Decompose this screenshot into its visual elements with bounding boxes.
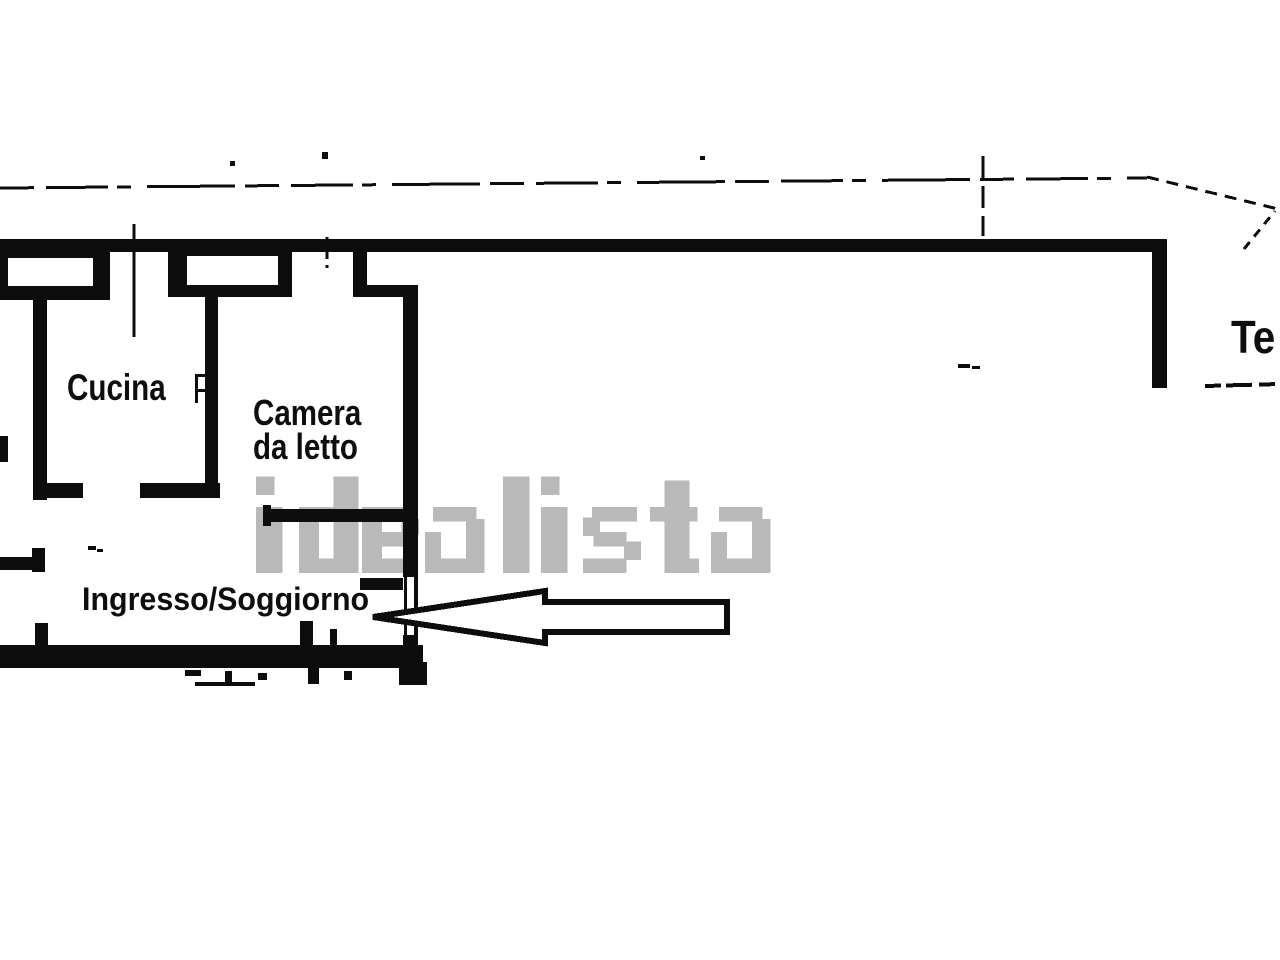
room-label-terrace-partial: Te [1231,310,1275,364]
wall-stub-left-edge [0,436,8,462]
window-2-opening [187,256,278,285]
wall-bedroom-bottom [263,509,417,522]
room-label-kitchen: Cucina [67,367,166,409]
floor-plan-canvas: Cucina Camera da letto Ingresso/Soggiorn… [0,0,1280,960]
terrace-dashed-line-under-label [1205,384,1280,386]
door-bracket-tick-mid [195,389,205,392]
wall-right-outer [1152,239,1167,388]
floor-plan-drawing [0,0,1280,960]
wall-rooms-right-upper [403,285,418,577]
idealista-watermark [256,477,770,573]
wall-kitchen-bedroom-divider [205,297,218,490]
wall-bottom-stub [35,623,48,645]
terrace-dashed-line [0,178,1147,188]
wall-left-inner-foot [33,483,83,498]
wall-left-inner [33,300,47,500]
wall-bottom [0,645,423,668]
wall-bedroom-bottom-cap [263,505,271,526]
door-bracket-tick-top [195,374,206,377]
room-label-bedroom: Camera da letto [253,396,361,464]
room-label-bedroom-line1: Camera [253,396,361,430]
entrance-arrow [373,591,727,643]
wall-stub-left-cap [32,548,45,572]
terrace-diagonal-line [1147,177,1278,209]
room-label-entrance-living: Ingresso/Soggiorno [82,581,369,618]
terrace-diagonal-line-2 [1244,211,1275,249]
window-1-opening [8,258,93,286]
entrance-door-line-left [404,577,407,635]
room-label-bedroom-line2: da letto [253,430,361,464]
door-bracket-line [195,374,198,403]
wall-kitchen-bottom [140,483,220,498]
